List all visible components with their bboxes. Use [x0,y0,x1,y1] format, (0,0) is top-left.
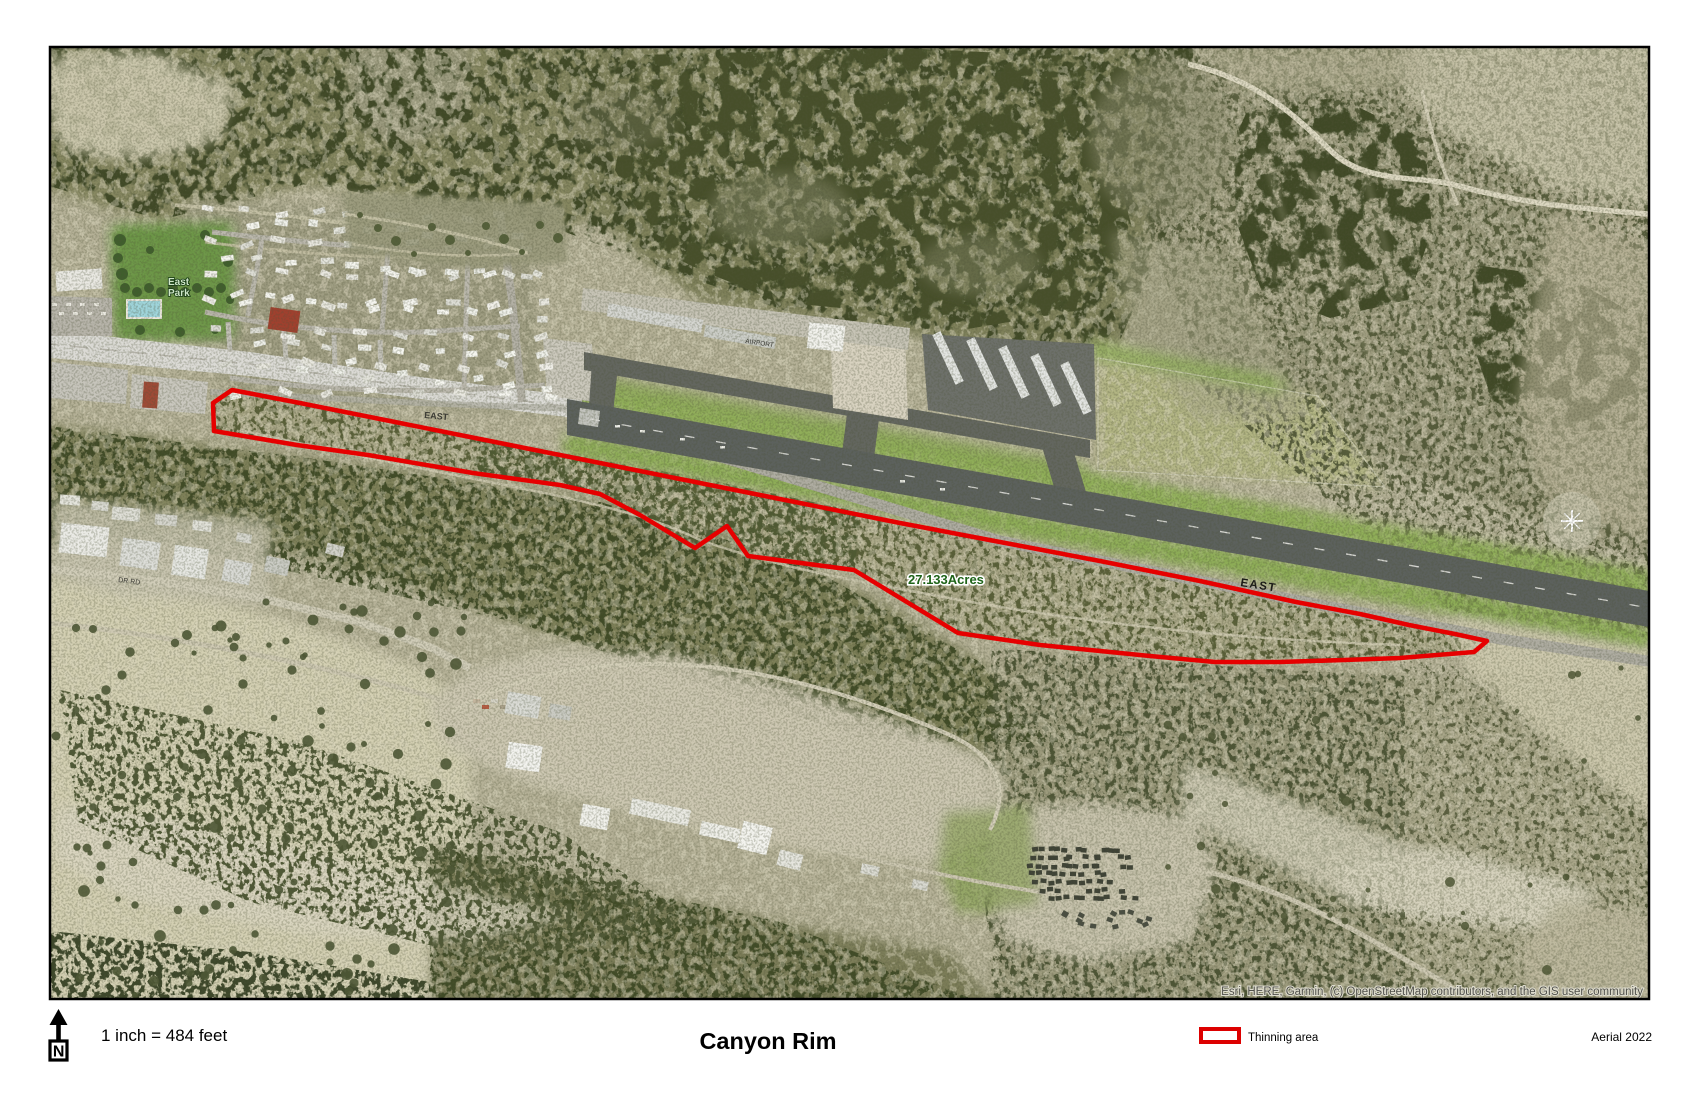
svg-text:Esri, HERE, Garmin, (c) OpenSt: Esri, HERE, Garmin, (c) OpenStreetMap co… [1221,986,1643,998]
svg-text:27.133Acres: 27.133Acres [908,572,984,587]
svg-text:1 inch = 484 feet: 1 inch = 484 feet [101,1026,227,1045]
svg-text:N: N [53,1044,65,1061]
svg-text:Park: Park [168,288,190,299]
svg-text:Aerial 2022: Aerial 2022 [1591,1030,1652,1044]
svg-text:East: East [168,277,190,288]
svg-text:Canyon Rim: Canyon Rim [699,1028,836,1054]
svg-text:EAST: EAST [424,410,449,422]
svg-text:Thinning area: Thinning area [1248,1032,1319,1044]
